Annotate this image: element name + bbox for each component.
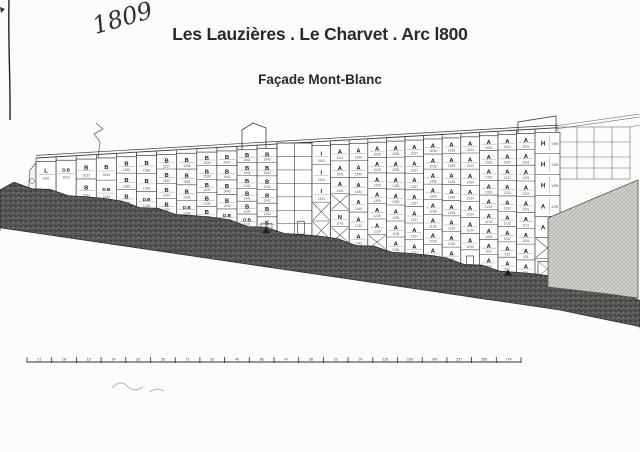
apartment-column: I1643I1543I1443: [312, 141, 331, 244]
svg-text:1531: 1531: [522, 160, 530, 164]
apartment-column: A1641A1541A1441N1141: [331, 140, 350, 247]
apartment-column: A1635A1535A1435A1335A1235A1135A1035A935: [442, 133, 461, 266]
facade-drawing: L1531D.B1532B1633B1533B1634D.B1534B1635B…: [0, 0, 640, 452]
svg-text:1541: 1541: [243, 171, 251, 175]
svg-text:1538: 1538: [183, 180, 191, 184]
svg-text:1340: 1340: [355, 207, 363, 211]
scale-label: 40: [235, 358, 239, 362]
svg-text:1634: 1634: [466, 148, 474, 152]
scale-label: 774: [506, 358, 512, 362]
svg-text:1355: 1355: [551, 184, 558, 188]
svg-text:1133: 1133: [485, 220, 492, 224]
svg-text:1432: 1432: [504, 176, 512, 180]
svg-text:1436: 1436: [429, 179, 437, 183]
svg-text:N: N: [338, 215, 342, 221]
svg-text:1439: 1439: [373, 183, 381, 187]
scale-bar: 2118151433557120408647582224215206240237…: [27, 357, 521, 363]
svg-text:D.B: D.B: [183, 205, 192, 210]
apartment-column: B1641B1541B1441B1341B1241D.B1141: [237, 145, 257, 231]
svg-text:1139: 1139: [374, 229, 381, 233]
svg-text:A: A: [541, 225, 546, 231]
svg-text:1641: 1641: [243, 158, 251, 162]
svg-text:1336: 1336: [429, 194, 437, 198]
scanned-plan-page: 1809 Les Lauzières . Le Charvet . Arc l8…: [0, 0, 640, 452]
svg-text:1640: 1640: [223, 161, 231, 165]
svg-text:1231: 1231: [522, 208, 530, 212]
svg-text:1640: 1640: [355, 155, 363, 159]
svg-text:1238: 1238: [392, 216, 400, 220]
scale-label: 258: [481, 358, 487, 362]
svg-text:1637: 1637: [163, 164, 171, 168]
svg-text:cot 1750: cot 1750: [502, 277, 514, 281]
svg-text:1437: 1437: [163, 194, 171, 198]
svg-text:1455: 1455: [551, 163, 558, 167]
svg-text:A: A: [541, 204, 546, 210]
scale-label: 237: [456, 358, 462, 362]
scan-edge-line: [9, 0, 10, 120]
svg-text:1338: 1338: [392, 200, 400, 204]
svg-text:1140: 1140: [355, 241, 362, 245]
svg-text:1341: 1341: [243, 197, 251, 201]
svg-text:1634: 1634: [103, 173, 111, 177]
scale-label: 206: [407, 358, 413, 362]
svg-text:1132: 1132: [504, 222, 511, 226]
svg-text:B: B: [144, 179, 148, 185]
scale-label: 22: [334, 358, 338, 362]
svg-text:1632: 1632: [504, 145, 512, 149]
svg-text:1131: 1131: [522, 223, 529, 227]
svg-text:1538: 1538: [392, 168, 400, 172]
svg-text:1639: 1639: [203, 161, 211, 165]
svg-text:1633: 1633: [83, 174, 91, 178]
svg-text:1034: 1034: [466, 245, 474, 249]
svg-text:1332: 1332: [504, 191, 512, 195]
scale-label: 15: [87, 358, 91, 362]
svg-text:B: B: [185, 189, 189, 195]
scale-label: 215: [382, 358, 388, 362]
svg-text:1334: 1334: [466, 196, 474, 200]
svg-text:1433: 1433: [485, 175, 493, 179]
svg-text:1533: 1533: [485, 161, 493, 165]
svg-text:1340: 1340: [223, 204, 231, 208]
svg-text:1038: 1038: [392, 248, 400, 252]
svg-text:1539: 1539: [373, 168, 381, 172]
svg-text:1637: 1637: [411, 152, 419, 156]
svg-text:1437: 1437: [411, 185, 419, 189]
svg-text:1536: 1536: [143, 186, 151, 190]
svg-text:1631: 1631: [522, 144, 530, 148]
svg-text:H: H: [541, 183, 545, 189]
svg-text:1642: 1642: [263, 158, 271, 162]
svg-text:1536: 1536: [429, 164, 437, 168]
svg-text:1535: 1535: [448, 164, 456, 168]
svg-text:1440: 1440: [223, 190, 231, 194]
svg-text:1136: 1136: [429, 225, 436, 229]
svg-text:933: 933: [486, 250, 492, 254]
svg-text:1438: 1438: [183, 196, 191, 200]
svg-text:1255: 1255: [551, 205, 558, 209]
svg-text:1638: 1638: [183, 164, 191, 168]
svg-text:1335: 1335: [448, 195, 456, 199]
scale-label: 18: [62, 358, 66, 362]
scale-label: 240: [432, 358, 438, 362]
svg-text:1535: 1535: [123, 185, 131, 189]
apartment-column: A1631A1531A1431A1331A1231A1131A1031A931A…: [517, 129, 536, 280]
apartment-column: A1636A1536A1436A1336A1236A1136A1036A936: [424, 134, 443, 263]
svg-text:1439: 1439: [203, 188, 211, 192]
svg-text:1539: 1539: [203, 175, 211, 179]
svg-text:1643: 1643: [318, 159, 326, 163]
svg-text:B: B: [124, 194, 128, 200]
svg-text:D.B: D.B: [143, 197, 152, 202]
svg-text:1443: 1443: [318, 197, 326, 201]
svg-text:1633: 1633: [485, 146, 493, 150]
svg-text:1532: 1532: [62, 175, 70, 179]
svg-text:1638: 1638: [392, 152, 400, 156]
svg-text:1141: 1141: [336, 222, 343, 226]
apartment-column: B1639B1539B1439B1339B1239: [197, 148, 217, 224]
svg-text:B: B: [124, 178, 128, 184]
scale-label: 33: [136, 358, 140, 362]
svg-text:1239: 1239: [373, 214, 381, 218]
svg-text:1035: 1035: [448, 242, 456, 246]
svg-text:D.B: D.B: [62, 167, 71, 172]
svg-text:1541: 1541: [336, 172, 344, 176]
svg-text:1635: 1635: [123, 168, 131, 172]
svg-text:1031: 1031: [522, 239, 530, 243]
svg-text:1234: 1234: [466, 213, 474, 217]
scale-label: 24: [358, 358, 362, 362]
svg-text:1032: 1032: [504, 237, 512, 241]
svg-text:1543: 1543: [318, 178, 326, 182]
rock-outcrop: [548, 180, 638, 298]
svg-text:1435: 1435: [448, 180, 456, 184]
svg-text:1236: 1236: [429, 209, 437, 213]
svg-text:1333: 1333: [485, 190, 493, 194]
apartment-column: A1637A1537A1437A1337A1237A1137A1037: [405, 136, 424, 261]
apartment-column: B1642B1542B1442B1342B1242K1142: [257, 144, 277, 234]
apartment-column: A1634A1534A1434A1334A1234A1134A1034: [461, 132, 480, 270]
scale-label: 86: [260, 358, 264, 362]
apartment-column: A1632A1532A1432A1332A1232A1132A1032A932A…: [498, 130, 517, 276]
apartment-column: A1638A1538A1438A1338A1238A1138A1038: [386, 137, 405, 257]
svg-text:B: B: [185, 158, 189, 164]
svg-text:B: B: [185, 174, 189, 180]
svg-text:1242: 1242: [263, 212, 271, 216]
scale-label: 20: [210, 358, 214, 362]
svg-text:1441: 1441: [336, 189, 344, 193]
svg-text:1641: 1641: [336, 156, 344, 160]
svg-text:1440: 1440: [355, 190, 363, 194]
svg-text:1532: 1532: [504, 160, 512, 164]
svg-text:1431: 1431: [522, 176, 530, 180]
svg-text:1555: 1555: [551, 142, 558, 146]
svg-text:1639: 1639: [373, 153, 381, 157]
svg-text:B: B: [124, 162, 128, 168]
scale-label: 58: [309, 358, 313, 362]
svg-text:1331: 1331: [522, 192, 530, 196]
svg-text:1534: 1534: [466, 164, 474, 168]
svg-text:1134: 1134: [467, 229, 474, 233]
svg-text:1036: 1036: [429, 240, 437, 244]
svg-text:cot 1650: cot 1650: [260, 235, 272, 239]
scale-label: 47: [284, 358, 288, 362]
apartment-column: B1636B1536D.B1436: [137, 151, 157, 213]
svg-text:1441: 1441: [243, 184, 251, 188]
svg-text:H: H: [541, 162, 545, 168]
scale-label: 14: [111, 358, 115, 362]
pencil-squiggle: [112, 383, 164, 392]
svg-text:B: B: [104, 165, 108, 171]
scan-speck: [0, 7, 5, 13]
apartment-column: A1640A1540A1440A1340A1240A1140: [349, 139, 368, 251]
apartment-column: B1637B1537B1437B1337: [157, 150, 177, 217]
svg-text:1233: 1233: [485, 205, 493, 209]
antenna-scribble: [94, 123, 103, 158]
svg-text:1342: 1342: [263, 199, 271, 203]
apartment-column: A1633A1533A1433A1333A1233A1133A1033A933A…: [479, 131, 498, 273]
svg-text:1636: 1636: [143, 168, 151, 172]
svg-text:1540: 1540: [223, 175, 231, 179]
svg-text:1542: 1542: [263, 171, 271, 175]
svg-text:1240: 1240: [355, 224, 363, 228]
svg-text:1540: 1540: [355, 173, 363, 177]
svg-text:1237: 1237: [411, 218, 419, 222]
scale-label: 55: [161, 358, 165, 362]
svg-text:B: B: [144, 161, 148, 167]
svg-text:1442: 1442: [263, 185, 271, 189]
svg-text:1635: 1635: [448, 149, 456, 153]
svg-text:1241: 1241: [243, 210, 251, 214]
svg-text:H: H: [541, 141, 545, 147]
apartment-column: A1639A1539A1439A1339A1239A1139: [368, 138, 387, 254]
svg-text:1537: 1537: [163, 179, 171, 183]
svg-text:1138: 1138: [392, 232, 399, 236]
svg-text:931: 931: [523, 255, 529, 259]
svg-text:1434: 1434: [466, 180, 474, 184]
svg-text:1438: 1438: [392, 184, 400, 188]
svg-text:1232: 1232: [504, 206, 512, 210]
svg-text:1339: 1339: [203, 202, 211, 206]
svg-text:D.B: D.B: [102, 187, 111, 192]
svg-text:1235: 1235: [448, 211, 456, 215]
svg-text:1531: 1531: [42, 176, 50, 180]
apartment-column: B1633B1533: [76, 155, 96, 203]
apartment-column: B1640B1540B1440B1340D.B1240: [217, 146, 237, 227]
svg-text:1537: 1537: [411, 168, 419, 172]
background-grid: [555, 114, 640, 179]
svg-text:1137: 1137: [411, 235, 418, 239]
svg-text:1337: 1337: [411, 201, 419, 205]
svg-text:932: 932: [505, 252, 511, 256]
scale-label: 21: [37, 358, 41, 362]
svg-text:1636: 1636: [429, 149, 437, 153]
svg-text:1339: 1339: [373, 199, 381, 203]
svg-text:1033: 1033: [485, 235, 493, 239]
apartment-column: B1638B1538B1438D.B1338: [177, 149, 197, 221]
scale-label: 71: [186, 358, 190, 362]
svg-text:1135: 1135: [448, 227, 455, 231]
svg-text:L: L: [44, 168, 48, 174]
